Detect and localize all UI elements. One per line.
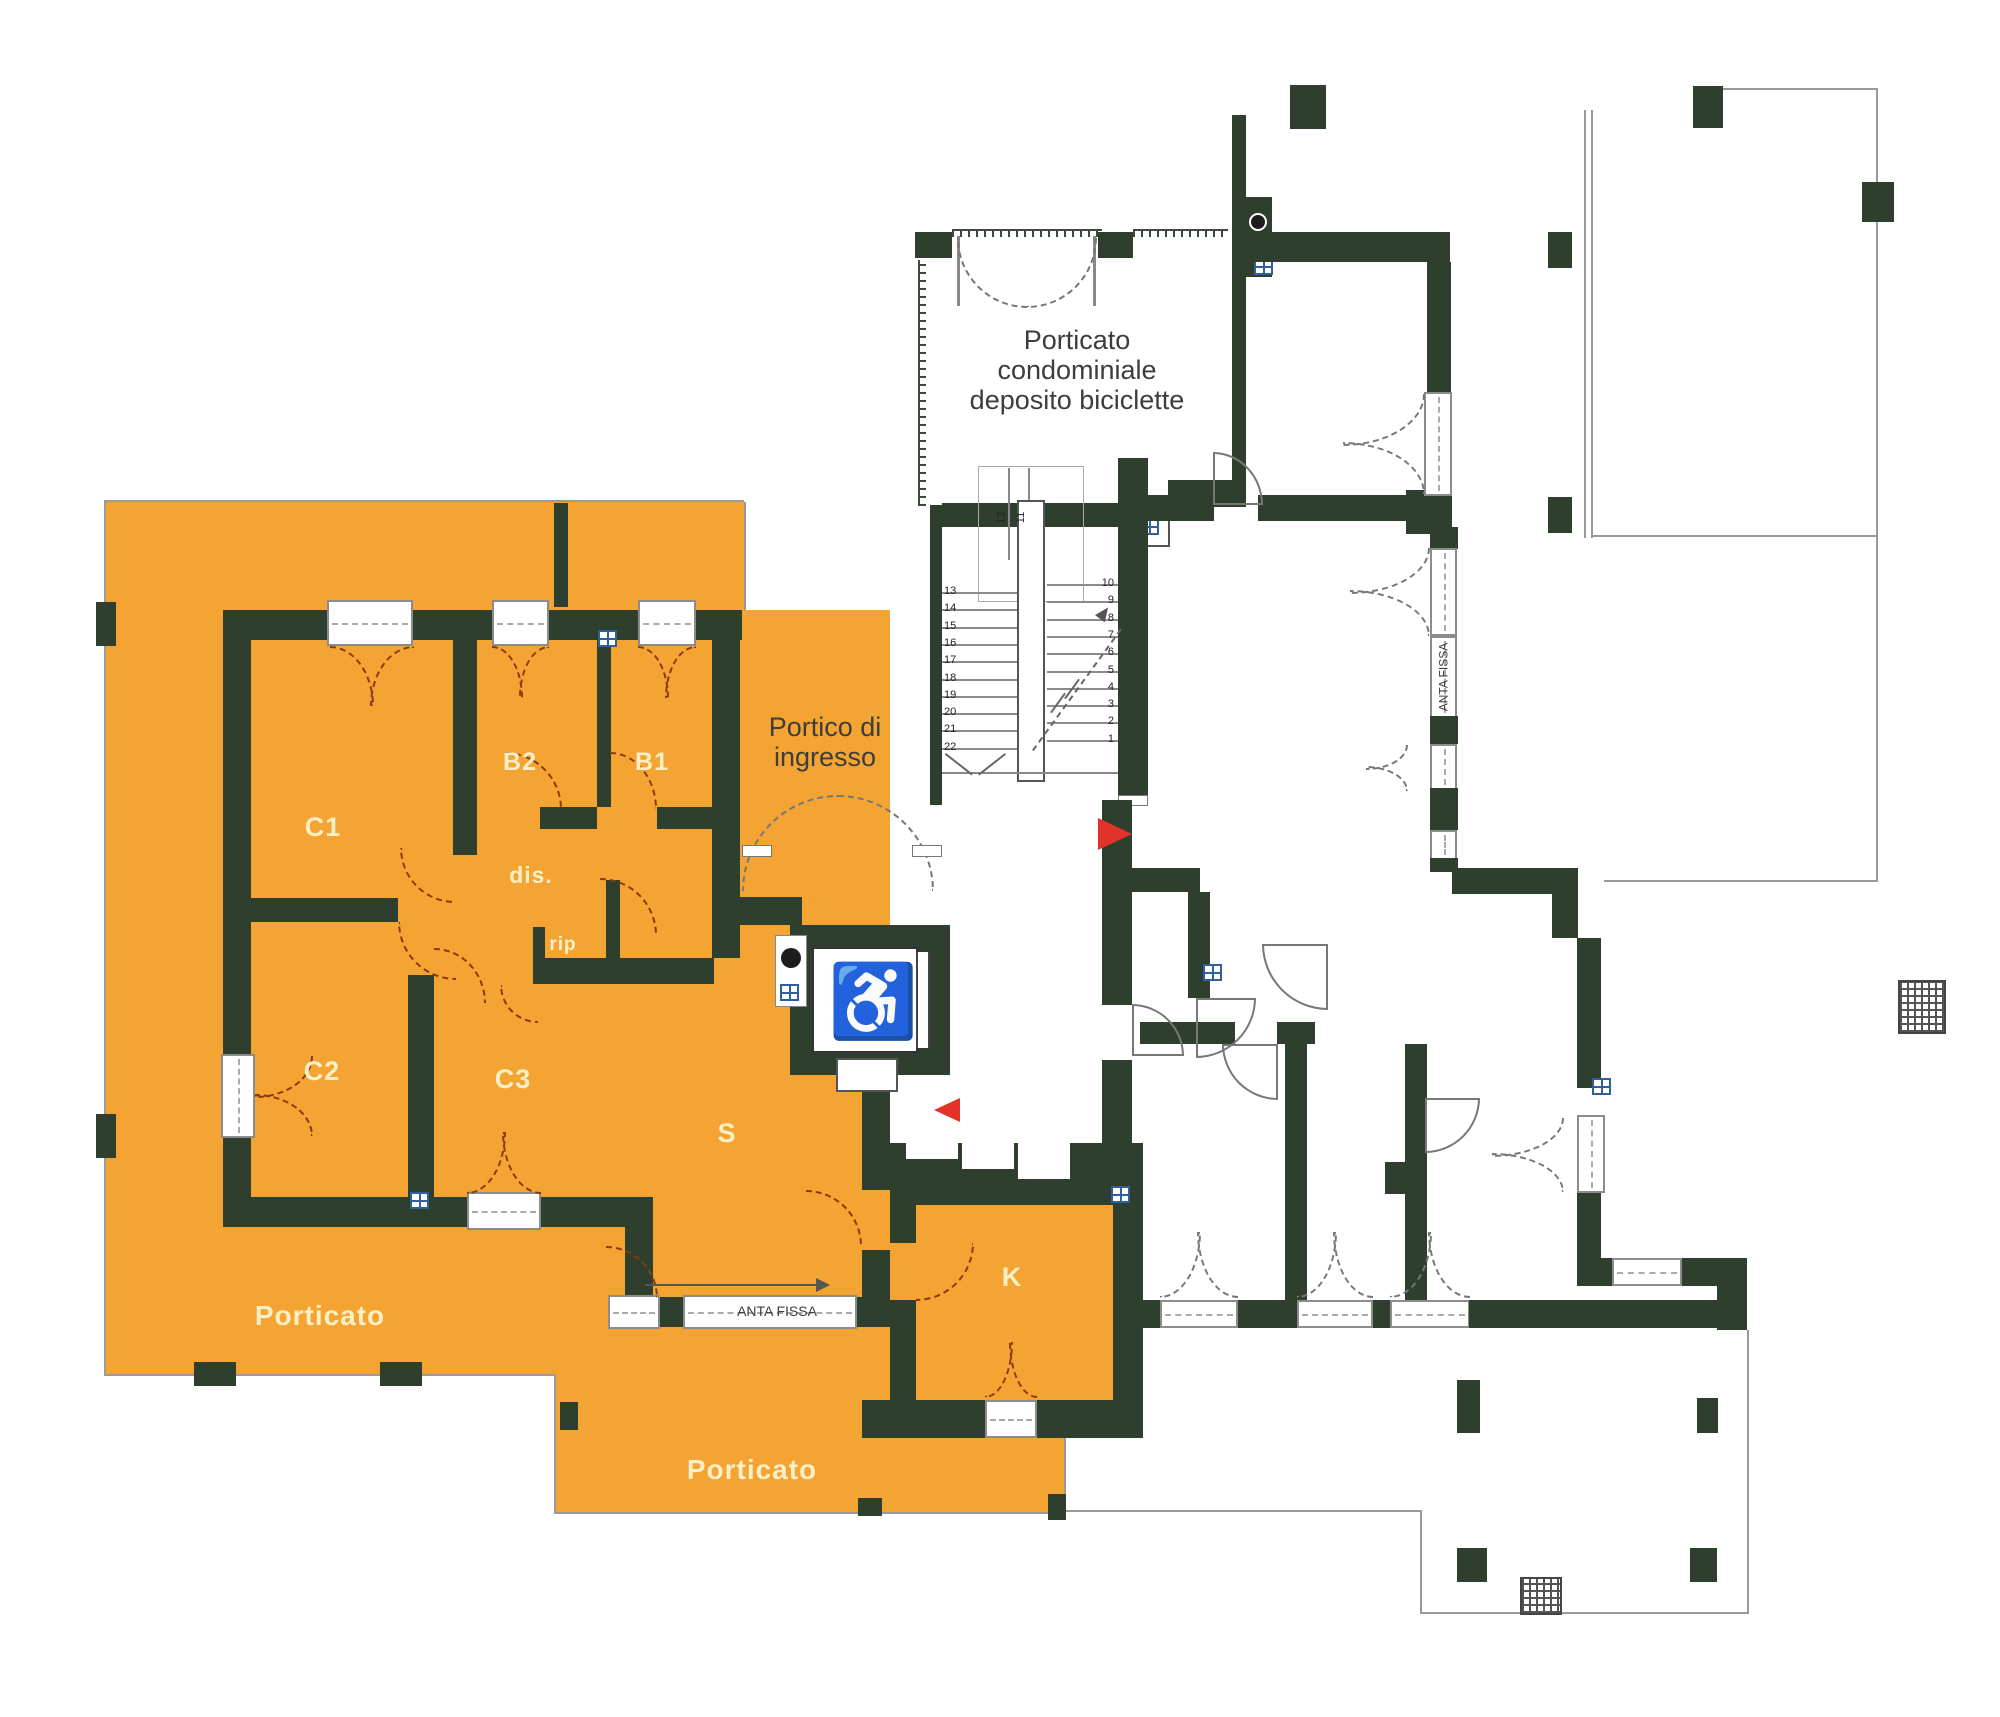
wall <box>248 898 398 922</box>
wall <box>1427 262 1451 394</box>
wall <box>862 1250 890 1327</box>
window-casement-arc <box>1390 1234 1470 1298</box>
step <box>1018 1143 1070 1179</box>
wall <box>1577 1193 1601 1261</box>
wall <box>1102 1060 1132 1200</box>
wall <box>1577 938 1601 1088</box>
wall <box>1552 868 1578 938</box>
window-casement-arc <box>330 646 414 704</box>
room-label-dis: dis. <box>496 862 566 889</box>
stair-number: 14 <box>944 603 956 614</box>
wall <box>223 640 251 1227</box>
pillar <box>1048 1494 1066 1520</box>
stair-number: 13 <box>944 586 956 597</box>
stair-number: 20 <box>944 707 956 718</box>
drain-grate <box>1520 1577 1562 1615</box>
wall <box>223 1197 653 1227</box>
fixture-icon <box>780 984 799 1001</box>
wall <box>1120 1300 1162 1328</box>
wall <box>533 958 714 984</box>
room-label-c1: C1 <box>288 812 358 843</box>
pillar <box>1693 86 1723 128</box>
stair-number: 1 <box>1108 734 1114 745</box>
terrace-line <box>1584 110 1586 538</box>
room-label-k: K <box>977 1262 1047 1293</box>
wall <box>712 897 802 925</box>
pillar <box>1548 497 1572 533</box>
stair-wall <box>930 505 942 805</box>
wall <box>1232 115 1246 505</box>
terrace-line <box>1420 1510 1422 1614</box>
window <box>327 600 413 646</box>
window <box>1297 1300 1373 1328</box>
pillar <box>1690 1548 1717 1582</box>
drain-grate <box>1898 980 1946 1034</box>
anta-fissa-label-vertical: ANTA FISSA <box>1437 630 1451 725</box>
stair-number: 18 <box>944 673 956 684</box>
porch-label-line1: Porticato <box>927 325 1227 356</box>
stair-number: 6 <box>1108 647 1114 658</box>
door-jamb <box>912 845 942 857</box>
window <box>1390 1300 1470 1328</box>
portico-label-line1: Portico di <box>725 712 925 743</box>
shaft-column <box>781 948 801 968</box>
window <box>1430 830 1457 860</box>
entrance-arrow-right <box>1098 818 1132 850</box>
elevator-door <box>916 952 930 1048</box>
step <box>906 1143 958 1159</box>
apartment-top-strip <box>554 502 744 610</box>
wheelchair-icon: ♿ <box>828 952 918 1052</box>
boundary-line <box>104 500 744 502</box>
window <box>1430 744 1457 790</box>
wall <box>657 807 712 829</box>
pillar <box>1457 1548 1487 1582</box>
door-arc <box>1222 1044 1278 1100</box>
wall <box>408 975 434 1202</box>
wall <box>453 640 477 855</box>
window-arrow <box>645 1284 820 1286</box>
boundary-line <box>554 1512 1066 1514</box>
window <box>608 1295 660 1329</box>
stair-numbers-upper: 1211 <box>996 500 1046 540</box>
wall <box>1430 527 1458 549</box>
entrance-door-arc <box>838 795 934 891</box>
window <box>492 600 549 646</box>
stair-number: 3 <box>1108 699 1114 710</box>
pillar <box>560 1402 578 1430</box>
wall <box>540 807 597 829</box>
fixture-icon <box>1592 1078 1611 1095</box>
portico-label-line2: ingresso <box>725 742 925 773</box>
stair-number: 22 <box>944 742 956 753</box>
window <box>1430 548 1457 636</box>
porticato-left-label: Porticato <box>230 1300 410 1332</box>
pillar <box>96 1114 116 1158</box>
room-label-s: S <box>692 1118 762 1149</box>
wall <box>1258 495 1410 521</box>
room-label-b1: B1 <box>617 748 687 777</box>
stair-number: 11 <box>1016 512 1027 523</box>
stair-number: 12 <box>997 511 1008 523</box>
wall <box>597 633 611 807</box>
elevator-sill <box>836 1058 898 1092</box>
wall <box>1430 788 1458 830</box>
screen-line <box>1133 229 1228 237</box>
window-casement-arc <box>1368 745 1408 791</box>
boiler-fixture-icon <box>1111 1186 1130 1203</box>
window-casement-arc <box>1160 1234 1238 1298</box>
terrace-line <box>1747 1330 1749 1614</box>
wall <box>554 503 568 607</box>
bath-fixture-icon <box>1203 964 1222 981</box>
wall <box>1122 868 1200 892</box>
column <box>1249 213 1267 231</box>
stair-number: 10 <box>1102 578 1114 589</box>
door-arc <box>957 238 1027 308</box>
window <box>1424 392 1452 496</box>
wall <box>862 1075 890 1190</box>
door-arc <box>1027 238 1097 308</box>
door-arc <box>1262 944 1328 1010</box>
wall <box>1373 1300 1391 1328</box>
window <box>638 600 696 646</box>
terrace-line <box>1064 1510 1422 1512</box>
wall <box>1452 868 1552 894</box>
fixture-icon <box>598 630 617 647</box>
terrace-line <box>1592 535 1876 537</box>
porticato-bottom-label: Porticato <box>662 1454 842 1486</box>
stair-number: 16 <box>944 638 956 649</box>
pillar <box>1548 232 1572 268</box>
window <box>467 1192 541 1230</box>
door-arc <box>1425 1098 1480 1153</box>
anta-fissa-label-horizontal: ANTA FISSA <box>712 1303 842 1319</box>
step <box>962 1143 1014 1169</box>
boundary-line <box>744 502 746 610</box>
terrace-line <box>1420 1612 1749 1614</box>
wall <box>1277 1022 1315 1044</box>
door-arc <box>1213 452 1263 505</box>
window-casement-arc <box>638 646 696 696</box>
wall <box>1385 1162 1427 1194</box>
pillar <box>96 602 116 646</box>
window <box>985 1400 1037 1438</box>
pillar <box>1098 232 1133 258</box>
window <box>221 1054 255 1138</box>
stair-number: 2 <box>1108 716 1114 727</box>
stair-number: 19 <box>944 690 956 701</box>
floor-plan: 13141516171819202122 10987654321 1211 ♿ <box>0 0 2000 1717</box>
room-label-b2: B2 <box>485 748 555 777</box>
window-casement-arc <box>1494 1118 1564 1192</box>
boundary-line <box>104 1374 556 1376</box>
stair-number: 9 <box>1108 595 1114 606</box>
stair-number: 15 <box>944 621 956 632</box>
stair-number: 17 <box>944 655 956 666</box>
wall <box>1128 495 1214 521</box>
window-casement-arc <box>467 1134 541 1194</box>
entrance-arrow-left <box>934 1098 960 1122</box>
wall <box>1405 1044 1427 1176</box>
pillar <box>1290 85 1326 129</box>
screen-line <box>952 229 1102 237</box>
pillar <box>380 1362 422 1386</box>
terrace-line <box>1591 110 1593 538</box>
window-casement-arc <box>1345 394 1425 494</box>
room-label-rip: rip <box>538 934 588 956</box>
wall <box>1469 1300 1747 1328</box>
window-casement-arc <box>985 1344 1037 1398</box>
fixture-icon <box>410 1192 429 1209</box>
window <box>1612 1258 1682 1286</box>
boundary-line <box>554 1376 556 1514</box>
pillar <box>1862 182 1894 222</box>
door-arc <box>1132 1004 1184 1056</box>
room-label-c2: C2 <box>287 1056 357 1087</box>
pillar <box>858 1498 882 1516</box>
railing <box>918 260 926 506</box>
wall <box>1188 892 1210 998</box>
pillar <box>915 232 952 258</box>
window-casement-arc <box>1297 1234 1373 1298</box>
porch-label-line2: condominiale <box>927 355 1227 386</box>
stair-number: 21 <box>944 724 956 735</box>
terrace-line <box>1697 88 1878 90</box>
door-jamb <box>742 845 772 857</box>
pillar <box>1697 1398 1718 1433</box>
window-casement-arc <box>1352 548 1430 636</box>
window <box>1577 1115 1605 1193</box>
terrace-line <box>1604 880 1878 882</box>
wall <box>1238 1300 1298 1328</box>
room-label-c3: C3 <box>478 1064 548 1095</box>
window-arrowhead <box>816 1278 830 1292</box>
window <box>1160 1300 1238 1328</box>
stair-numbers-left: 13141516171819202122 <box>944 586 968 781</box>
wall <box>1246 232 1450 262</box>
stair-number: 4 <box>1108 682 1114 693</box>
pillar <box>194 1362 236 1386</box>
window-casement-arc <box>492 646 549 696</box>
pillar <box>1457 1380 1480 1433</box>
porch-label-line3: deposito biciclette <box>927 385 1227 416</box>
stair-number: 5 <box>1108 665 1114 676</box>
